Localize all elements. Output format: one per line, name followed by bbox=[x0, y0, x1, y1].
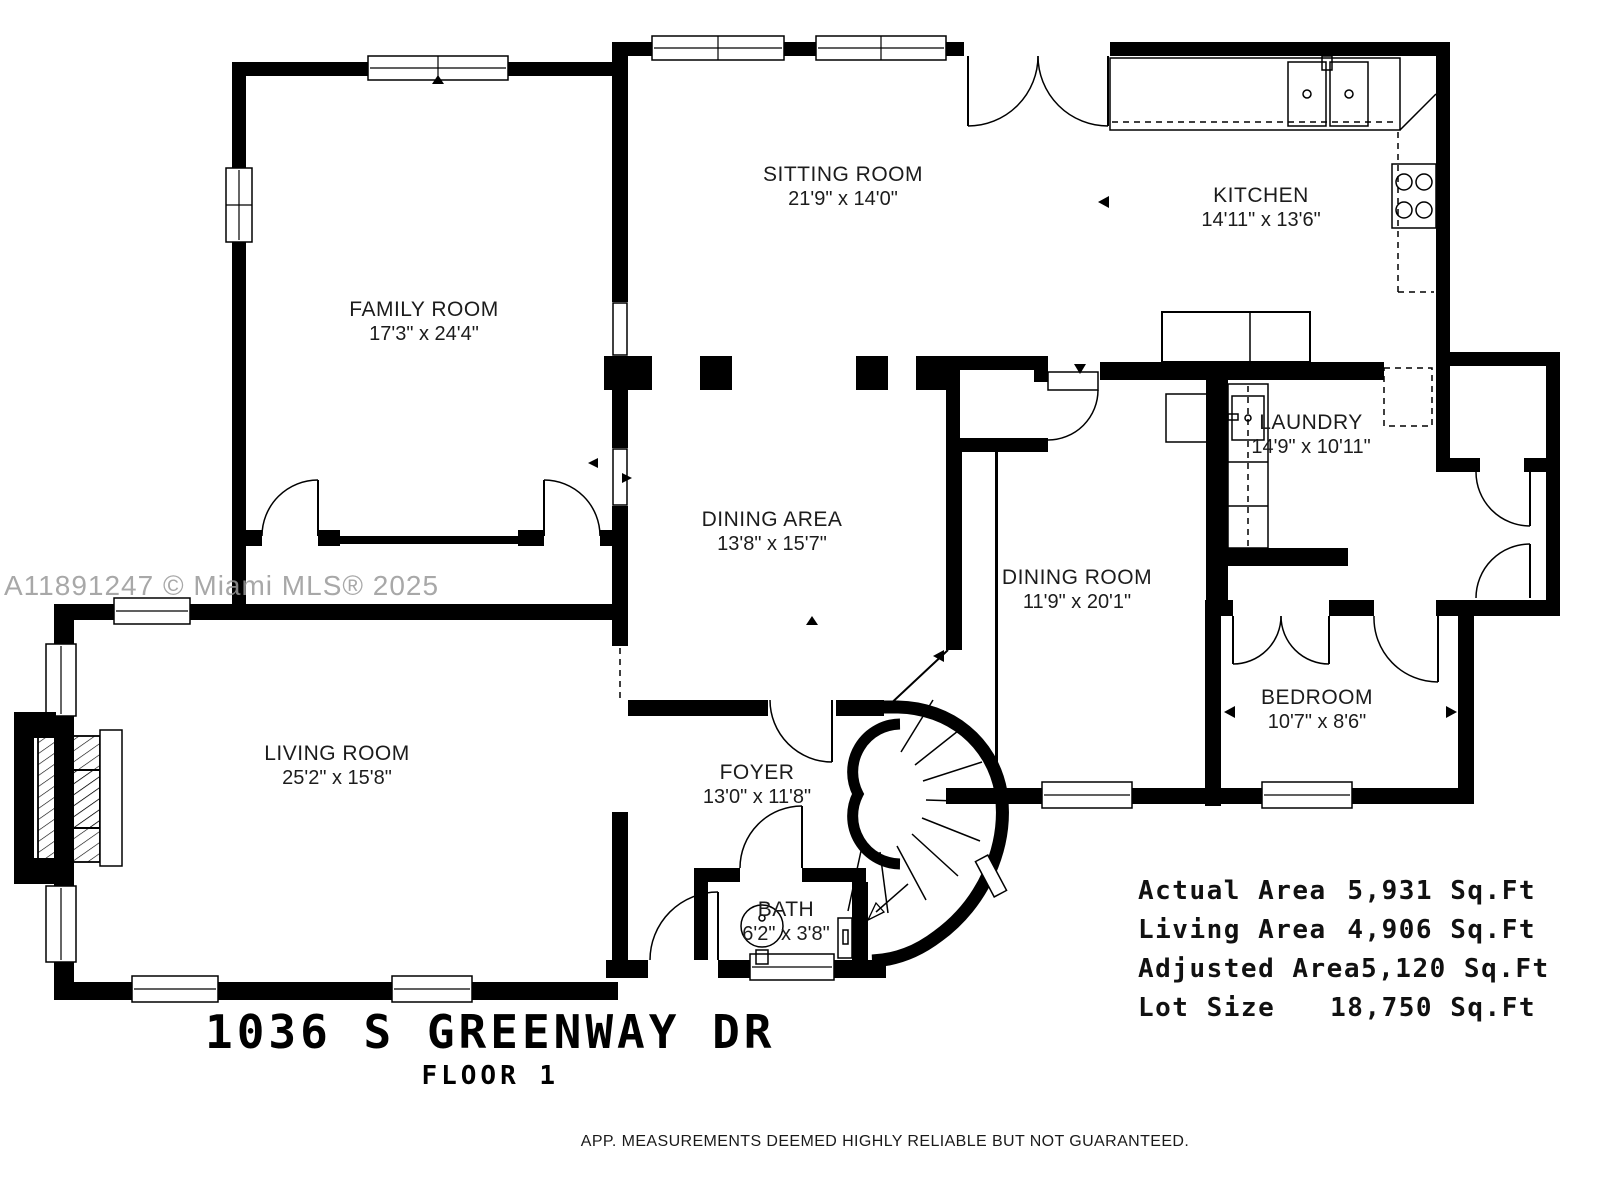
area-label: Actual Area bbox=[1138, 872, 1327, 911]
room-label-living-room: LIVING ROOM 25'2" x 15'8" bbox=[264, 742, 410, 790]
fireplace-icon bbox=[14, 712, 122, 884]
room-label-foyer: FOYER 13'0" x 11'8" bbox=[703, 761, 811, 809]
floor-plan-page: FAMILY ROOM 17'3" x 24'4" SITTING ROOM 2… bbox=[0, 0, 1600, 1200]
refrigerator-icon bbox=[1384, 368, 1432, 426]
area-row-living: Living Area 4,906 Sq.Ft bbox=[1138, 911, 1536, 950]
room-label-kitchen: KITCHEN 14'11" x 13'6" bbox=[1201, 184, 1320, 232]
area-row-adjusted: Adjusted Area 5,120 Sq.Ft bbox=[1138, 950, 1536, 989]
area-value: 5,931 Sq.Ft bbox=[1347, 872, 1536, 911]
room-label-family-room: FAMILY ROOM 17'3" x 24'4" bbox=[349, 298, 498, 346]
title-block: 1036 S GREENWAY DR FLOOR 1 bbox=[205, 1005, 776, 1091]
area-label: Adjusted Area bbox=[1138, 950, 1361, 989]
kitchen-counter bbox=[1110, 58, 1436, 292]
area-summary: Actual Area 5,931 Sq.Ft Living Area 4,90… bbox=[1138, 872, 1536, 1028]
room-label-bedroom: BEDROOM 10'7" x 8'6" bbox=[1261, 686, 1373, 734]
property-address: 1036 S GREENWAY DR bbox=[205, 1005, 776, 1059]
stove-icon bbox=[1392, 164, 1436, 228]
kitchen-sink bbox=[1288, 56, 1368, 126]
area-row-actual: Actual Area 5,931 Sq.Ft bbox=[1138, 872, 1536, 911]
area-label: Living Area bbox=[1138, 911, 1327, 950]
floor-label: FLOOR 1 bbox=[205, 1061, 776, 1091]
area-value: 18,750 Sq.Ft bbox=[1330, 989, 1536, 1028]
area-value: 5,120 Sq.Ft bbox=[1361, 950, 1550, 989]
area-value: 4,906 Sq.Ft bbox=[1347, 911, 1536, 950]
room-label-laundry: LAUNDRY 14'9" x 10'11" bbox=[1251, 411, 1370, 459]
toilet-icon bbox=[838, 918, 852, 958]
room-label-bath: BATH 6'2" x 3'8" bbox=[742, 898, 829, 946]
mls-watermark: A11891247 © Miami MLS® 2025 bbox=[4, 570, 439, 602]
area-label: Lot Size bbox=[1138, 989, 1275, 1028]
area-row-lot-size: Lot Size 18,750 Sq.Ft bbox=[1138, 989, 1536, 1028]
disclaimer-text: APP. MEASUREMENTS DEEMED HIGHLY RELIABLE… bbox=[581, 1133, 1189, 1151]
room-label-dining-room: DINING ROOM 11'9" x 20'1" bbox=[1002, 566, 1152, 614]
spiral-staircase bbox=[848, 700, 1007, 961]
room-label-dining-area: DINING AREA 13'8" x 15'7" bbox=[702, 508, 843, 556]
kitchen-island bbox=[1162, 312, 1310, 362]
room-label-sitting-room: SITTING ROOM 21'9" x 14'0" bbox=[763, 163, 923, 211]
